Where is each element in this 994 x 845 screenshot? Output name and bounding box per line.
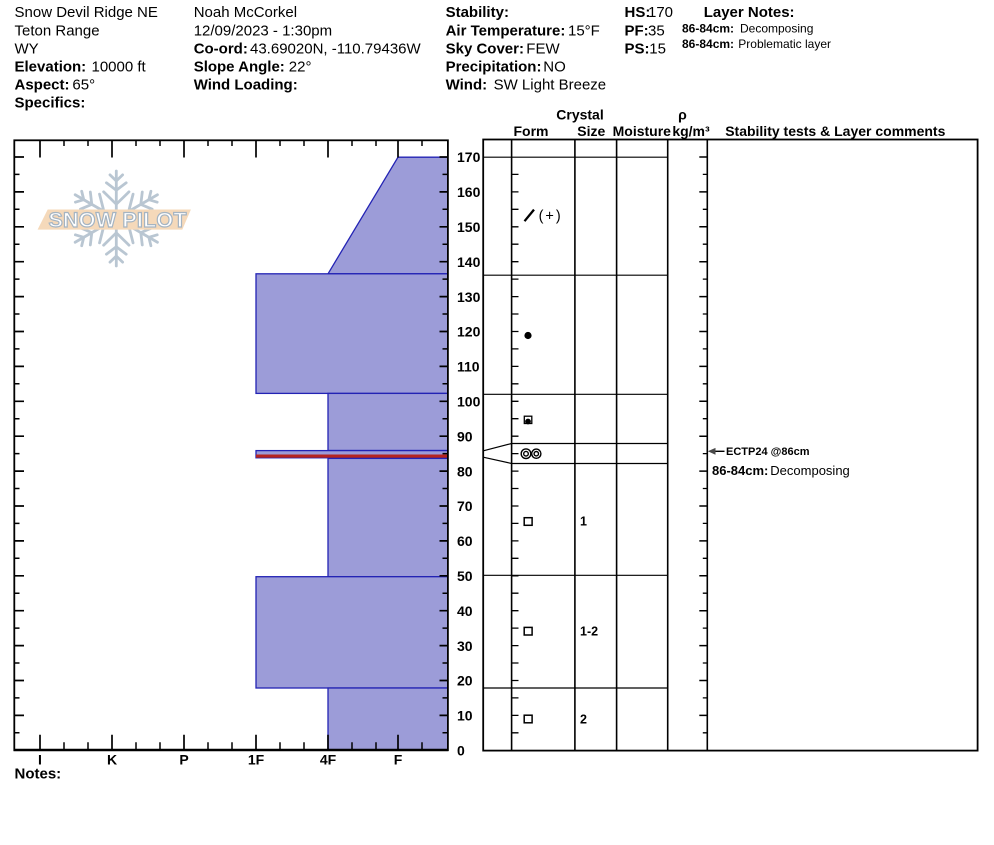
svg-text:Size: Size — [577, 123, 605, 139]
svg-text:0: 0 — [457, 743, 465, 759]
svg-text:K: K — [107, 752, 117, 768]
svg-text:Sky Cover:FEW: Sky Cover:FEW — [446, 40, 561, 57]
svg-text:86-84cm:Decomposing: 86-84cm:Decomposing — [712, 463, 850, 478]
svg-text:170: 170 — [457, 149, 481, 165]
svg-text:Co-ord:43.69020N, -110.79436W: Co-ord:43.69020N, -110.79436W — [194, 40, 422, 57]
svg-text:30: 30 — [457, 638, 473, 654]
svg-text:120: 120 — [457, 324, 481, 340]
svg-text:86-84cm:Decomposing: 86-84cm:Decomposing — [682, 21, 813, 35]
svg-text:100: 100 — [457, 394, 481, 410]
svg-text:Moisture: Moisture — [613, 123, 672, 139]
svg-text:60: 60 — [457, 533, 473, 549]
svg-text:2: 2 — [580, 712, 587, 726]
svg-text:Snow Devil Ridge NE: Snow Devil Ridge NE — [15, 4, 158, 21]
svg-text:PF:35: PF:35 — [625, 22, 665, 39]
svg-text:150: 150 — [457, 219, 481, 235]
svg-text:(+): (+) — [539, 208, 563, 224]
svg-text:kg/m³: kg/m³ — [672, 123, 710, 139]
svg-text:SNOW PILOT: SNOW PILOT — [49, 208, 187, 232]
svg-text:Form: Form — [514, 123, 549, 139]
svg-text:Precipitation:NO: Precipitation:NO — [446, 59, 566, 76]
svg-text:1-2: 1-2 — [580, 625, 598, 639]
svg-text:F: F — [394, 752, 403, 768]
svg-text:ρ: ρ — [678, 107, 687, 123]
svg-text:110: 110 — [457, 359, 480, 375]
svg-text:90: 90 — [457, 428, 473, 444]
svg-text:130: 130 — [457, 289, 481, 305]
svg-text:Wind:SW Light Breeze: Wind:SW Light Breeze — [446, 77, 607, 94]
svg-text:Slope Angle:22°: Slope Angle:22° — [194, 59, 312, 76]
svg-text:ECTP24 @86cm: ECTP24 @86cm — [726, 446, 810, 458]
svg-text:40: 40 — [457, 603, 473, 619]
svg-text:Stability tests & Layer commen: Stability tests & Layer comments — [725, 123, 945, 139]
svg-text:160: 160 — [457, 184, 481, 200]
svg-text:PS:15: PS:15 — [625, 40, 666, 57]
svg-text:Notes:: Notes: — [15, 766, 62, 783]
svg-text:70: 70 — [457, 498, 473, 514]
svg-text:Wind Loading:: Wind Loading: — [194, 77, 298, 94]
svg-text:Crystal: Crystal — [556, 107, 603, 123]
svg-text:86-84cm:Problematic layer: 86-84cm:Problematic layer — [682, 37, 831, 51]
svg-text:1F: 1F — [248, 752, 265, 768]
svg-text:Specifics:: Specifics: — [15, 95, 86, 112]
svg-text:Aspect:65°: Aspect:65° — [15, 77, 96, 94]
svg-text:80: 80 — [457, 463, 473, 479]
svg-text:20: 20 — [457, 673, 473, 689]
svg-text:HS:170: HS:170 — [625, 4, 674, 21]
svg-text:Elevation:10000 ft: Elevation:10000 ft — [15, 59, 147, 76]
svg-text:1: 1 — [580, 515, 587, 529]
svg-text:P: P — [179, 752, 188, 768]
svg-text:WY: WY — [15, 40, 39, 57]
svg-text:4F: 4F — [320, 752, 337, 768]
svg-text:Noah McCorkel: Noah McCorkel — [194, 4, 297, 21]
svg-text:Layer Notes:: Layer Notes: — [704, 4, 795, 21]
svg-text:Stability:: Stability: — [446, 4, 509, 21]
svg-text:Teton Range: Teton Range — [15, 22, 100, 39]
svg-text:10: 10 — [457, 708, 473, 724]
svg-text:12/09/2023 - 1:30pm: 12/09/2023 - 1:30pm — [194, 22, 332, 39]
svg-text:140: 140 — [457, 254, 481, 270]
svg-text:50: 50 — [457, 568, 473, 584]
svg-text:Air Temperature:15°F: Air Temperature:15°F — [446, 22, 600, 39]
